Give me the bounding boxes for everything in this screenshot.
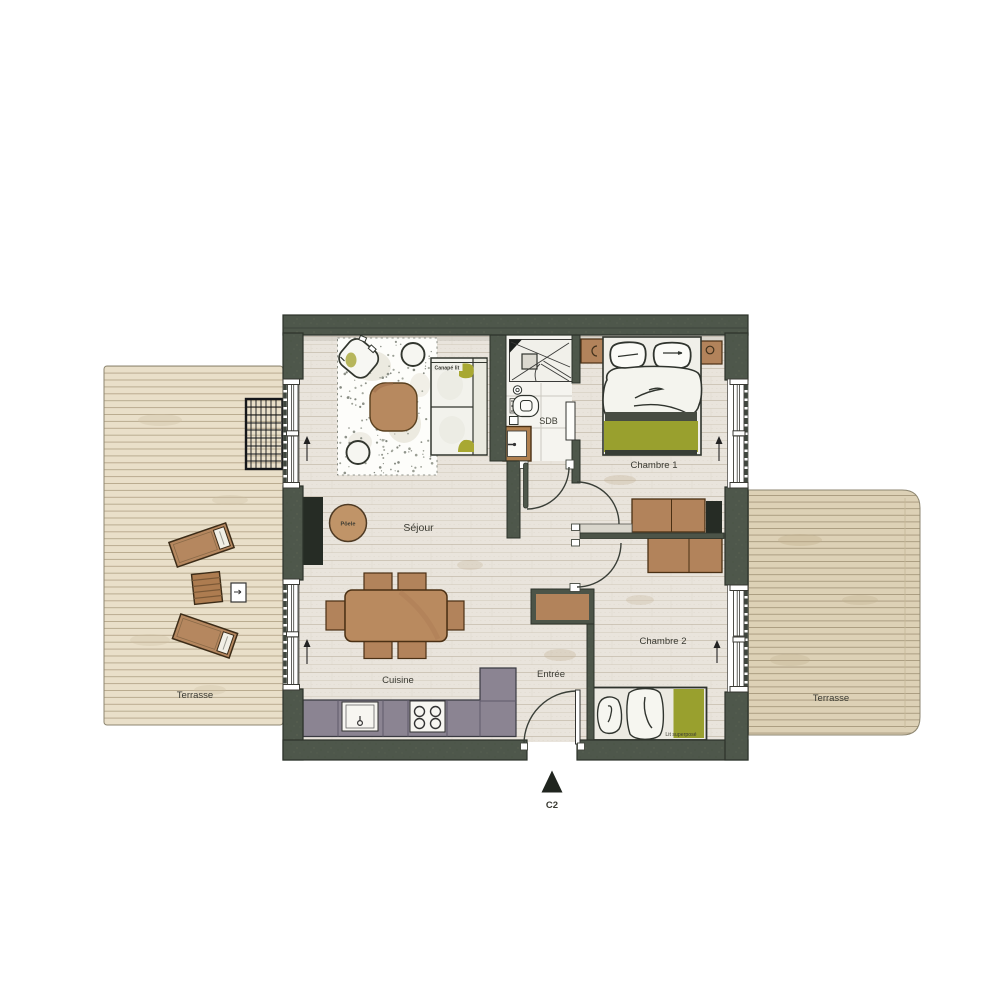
svg-text:Lit superposé: Lit superposé xyxy=(665,732,696,738)
svg-text:SDB: SDB xyxy=(539,416,558,426)
svg-text:Entrée: Entrée xyxy=(537,669,565,680)
svg-text:Séjour: Séjour xyxy=(403,522,434,534)
svg-text:Canapé lit: Canapé lit xyxy=(435,366,460,372)
svg-text:Chambre 1: Chambre 1 xyxy=(631,460,678,471)
svg-text:Terrasse: Terrasse xyxy=(177,690,213,701)
svg-text:Cuisine: Cuisine xyxy=(382,675,414,686)
svg-text:Pôele: Pôele xyxy=(341,522,356,528)
svg-text:Terrasse: Terrasse xyxy=(813,693,849,704)
svg-text:Chambre 2: Chambre 2 xyxy=(640,636,687,647)
svg-text:C2: C2 xyxy=(546,800,558,811)
